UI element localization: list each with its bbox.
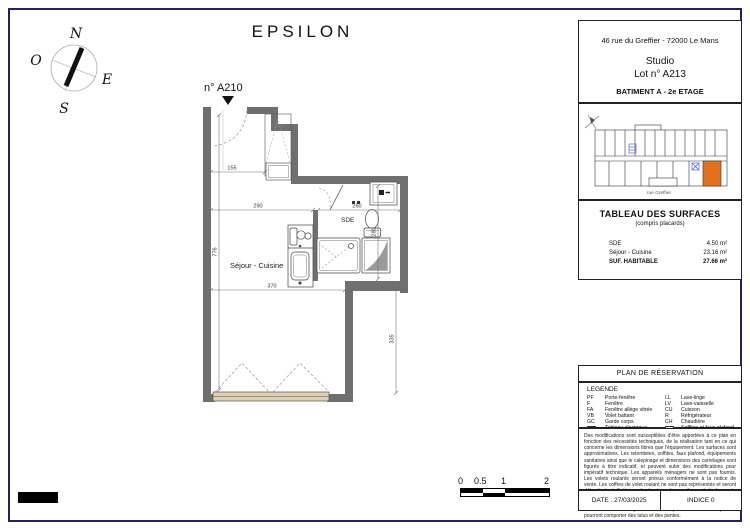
plan-sheet: EPSILON N O E S n° A210 xyxy=(0,0,750,530)
print-registration-mark xyxy=(18,492,58,503)
key-plan-building xyxy=(595,125,727,186)
floor-plan-drawing: N O E S n° A210 xyxy=(0,0,575,530)
dim-sejour-w2-label: 370 xyxy=(267,284,276,290)
shower-head xyxy=(349,244,354,249)
dim-sejour-h-label: 335 xyxy=(390,334,396,343)
disclaimer-box: Des modifications sont susceptibles d'êt… xyxy=(578,428,742,490)
entrance-marker-icon xyxy=(222,96,234,105)
washer-box xyxy=(370,182,397,205)
cooktop-burner xyxy=(297,231,305,239)
compass-o: O xyxy=(30,53,42,69)
scale-label: 2 xyxy=(544,476,549,486)
highlighted-unit xyxy=(703,161,721,186)
scale-label: 0.5 xyxy=(474,476,487,486)
unit-type: Studio xyxy=(579,56,741,67)
corner-cabinet xyxy=(362,238,390,273)
scale-label: 1 xyxy=(501,476,506,486)
shower xyxy=(317,238,360,273)
room-label-sejour: Séjour - Cuisine xyxy=(230,261,283,270)
legend-title: LEGENDE xyxy=(587,386,735,393)
indice-value: INDICE 0 xyxy=(660,491,742,510)
reservation-box: PLAN DE RÉSERVATION xyxy=(578,365,742,382)
window-swing xyxy=(215,363,329,392)
street-label: rue Greffier xyxy=(647,190,672,196)
project-info-box: 46 rue du Greffier - 72000 Le Mans Studi… xyxy=(578,20,742,103)
surface-row: Séjour - Cuisine23.16 m² xyxy=(579,249,741,258)
title-block: 46 rue du Greffier - 72000 Le Mans Studi… xyxy=(578,20,742,511)
lot-number: Lot n° A213 xyxy=(579,69,741,80)
compass-e: E xyxy=(101,72,112,88)
compass-n: N xyxy=(69,26,83,42)
legend-box: LEGENDE PFPorte-fenêtre LLLave-linge FFe… xyxy=(578,382,742,428)
dim-entry-label: 155 xyxy=(227,166,236,172)
scale-bar-graphic xyxy=(460,488,550,497)
key-plan-compass-icon xyxy=(585,115,599,129)
dim-sde-h-label: 280 xyxy=(372,227,378,236)
date-box: DATE : 27/03/2025 INDICE 0 xyxy=(578,490,742,511)
key-plan-box: rue Greffier xyxy=(578,103,742,200)
surfaces-title: TABLEAU DES SURFACES xyxy=(579,209,741,219)
dim-sde-w-label: 260 xyxy=(352,204,361,210)
key-plan-drawing: rue Greffier xyxy=(579,104,741,199)
surfaces-subtitle: (compris placards) xyxy=(579,221,741,227)
surfaces-box: TABLEAU DES SURFACES (compris placards) … xyxy=(578,200,742,280)
dim-total-h-label: 776 xyxy=(213,247,219,256)
unit-number-label: n° A210 xyxy=(204,82,243,94)
building-floor: BATIMENT A - 2e ETAGE xyxy=(579,87,741,96)
surface-row-total: SUF. HABITABLE27.66 m² xyxy=(579,258,741,267)
dim-sejour-w-label: 290 xyxy=(253,204,262,210)
scale-bar: 0 0.5 1 2 xyxy=(458,476,558,502)
address: 46 rue du Greffier - 72000 Le Mans xyxy=(579,36,741,45)
kitchen-unit xyxy=(288,225,313,287)
cooktop-burner xyxy=(305,233,311,239)
window xyxy=(213,363,329,401)
date-value: DATE : 27/03/2025 xyxy=(579,491,660,510)
reservation-title: PLAN DE RÉSERVATION xyxy=(579,370,741,377)
compass-s: S xyxy=(59,101,69,117)
scale-label: 0 xyxy=(458,476,463,486)
surface-row: SDE4.50 m² xyxy=(579,240,741,249)
room-label-sde: SDE xyxy=(341,217,355,224)
compass-rose-icon: N O E S xyxy=(30,26,112,117)
